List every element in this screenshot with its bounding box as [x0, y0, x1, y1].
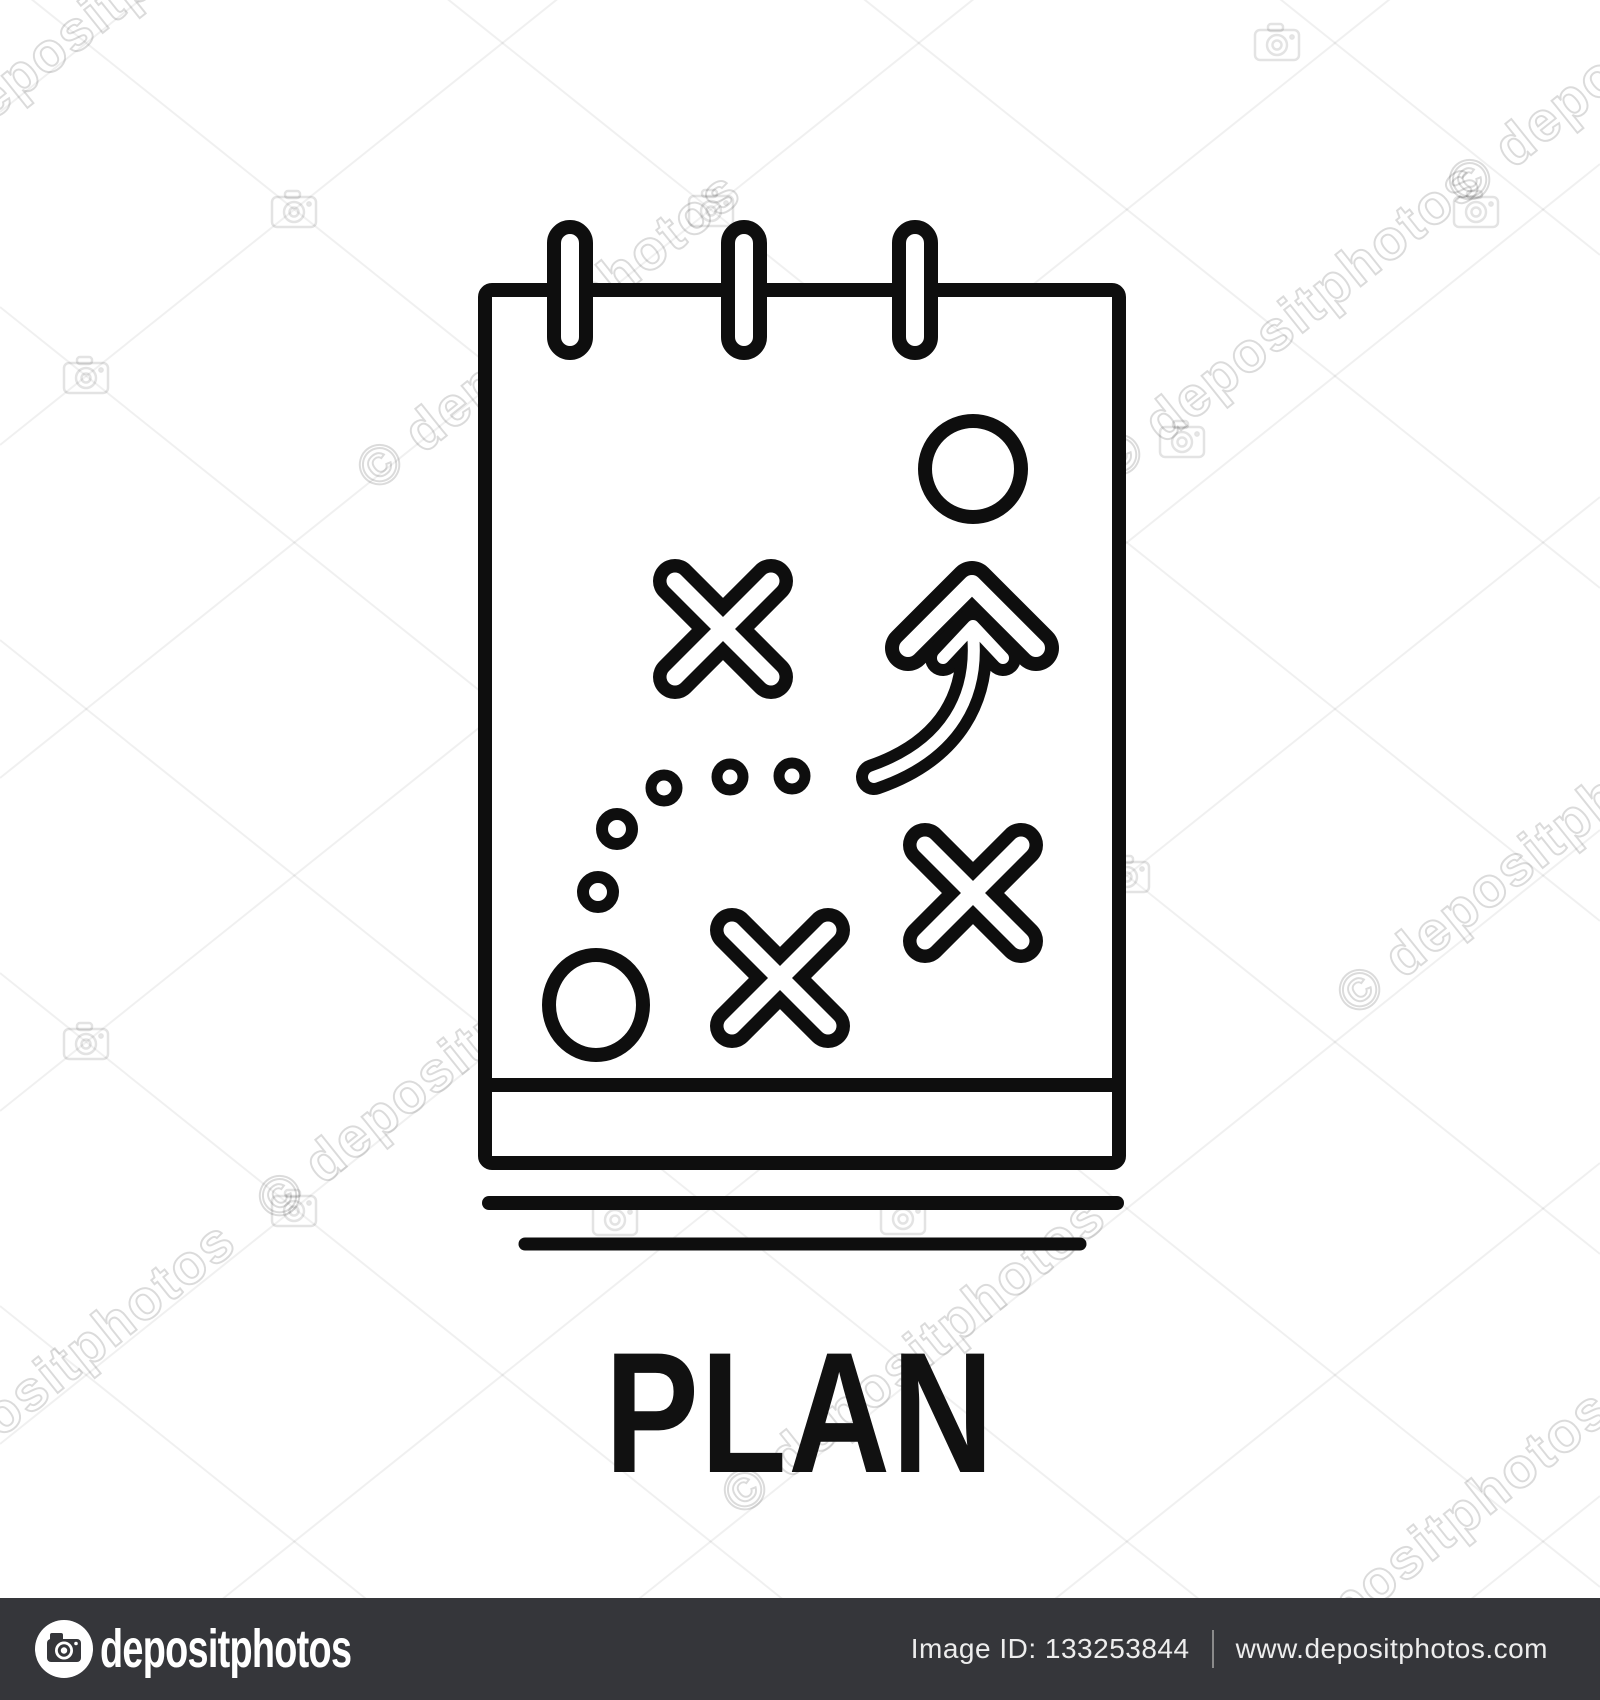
website-label: www.depositphotos.com [1236, 1633, 1548, 1665]
watermark-text: © depositphotos [0, 0, 292, 192]
meta-divider [1212, 1630, 1214, 1668]
image-meta: Image ID: 133253844 www.depositphotos.co… [911, 1630, 1548, 1668]
binder-ring [728, 227, 760, 353]
watermark-line [0, 0, 1600, 112]
image-id-label: Image ID: 133253844 [911, 1633, 1190, 1665]
path-dot [602, 814, 632, 844]
stock-illustration-canvas: © depositphotos© depositphotos© depositp… [0, 0, 1600, 1700]
path-dot [651, 775, 677, 801]
brand-wordmark: depositphotos [100, 1618, 351, 1680]
watermark-line [0, 0, 1600, 255]
attribution-bar: depositphotos Image ID: 133253844 www.de… [0, 1598, 1600, 1700]
notepad-body [485, 290, 1119, 1163]
binder-ring [554, 227, 586, 353]
path-dot [583, 877, 613, 907]
depositphotos-camera-logo-icon [34, 1619, 94, 1679]
path-dot [717, 764, 743, 790]
watermark-camera-icon [1255, 24, 1299, 60]
stock-image-page: { "image": { "label": "PLAN", "icon_colo… [0, 0, 1600, 1700]
path-dot [779, 763, 805, 789]
binder-ring [899, 227, 931, 353]
plan-notepad-icon [478, 227, 1126, 1244]
watermark-text: © depositphotos [0, 1208, 247, 1552]
caption-plan: PLAN [605, 1318, 995, 1509]
watermark-text: © depositphotos [1084, 148, 1492, 492]
depositphotos-logo: depositphotos [34, 1618, 459, 1680]
